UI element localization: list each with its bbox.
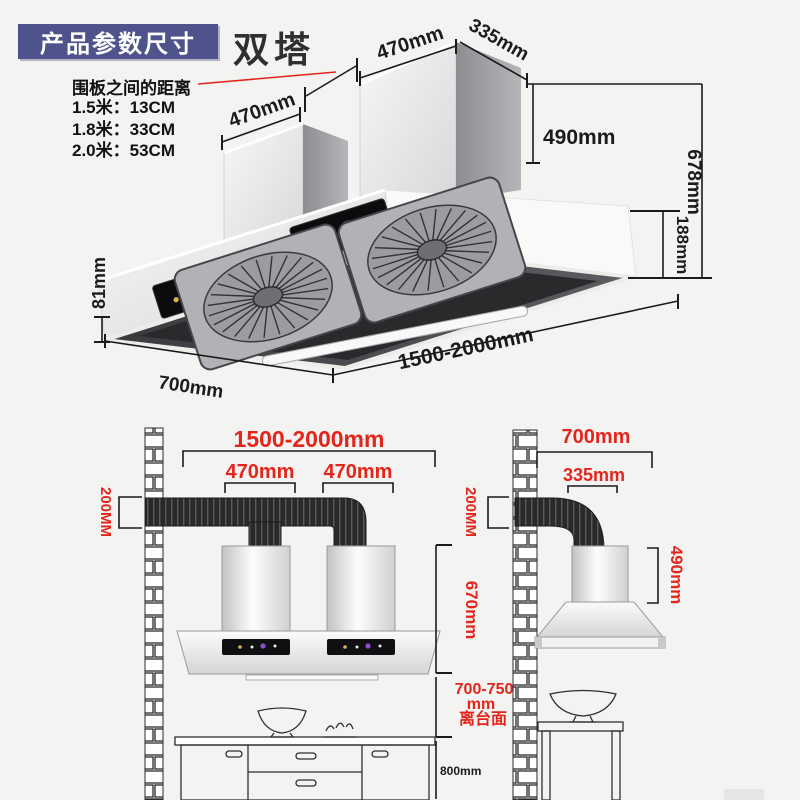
fe-wok-and-burner xyxy=(258,708,356,737)
gap-leader-line xyxy=(198,72,336,84)
dim-fe-total-width: 1500-2000mm xyxy=(234,426,385,452)
fe-right-chimney xyxy=(327,546,395,631)
fe-hood-body xyxy=(177,631,440,674)
dim-chimney-height: 490mm xyxy=(543,126,615,149)
top-3d-view: 470mm 470mm 335mm 490mm 678mm xyxy=(89,15,712,403)
fe-light-bar xyxy=(246,675,378,680)
dim-fe-left-chimney: 470mm xyxy=(226,461,295,483)
side-elevation: 700mm 335mm 200MM 490mm xyxy=(462,426,686,800)
dim-fe-hood-height: 670mm xyxy=(462,581,481,640)
brick-wall-right xyxy=(513,430,537,800)
dim-se-duct-height: 200MM xyxy=(462,487,479,537)
duct-branch-left xyxy=(249,522,281,547)
dim-hood-body-height: 188mm xyxy=(673,216,692,275)
se-wok-and-stand xyxy=(538,691,623,800)
se-hood-cap-right xyxy=(658,637,665,648)
dim-left-chimney-width: 470mm xyxy=(226,88,298,132)
fe-control-panel-left xyxy=(222,639,290,655)
se-hood-rim xyxy=(535,637,665,648)
dim-se-chimney-height: 490mm xyxy=(667,546,686,605)
fe-left-chimney xyxy=(222,546,290,631)
fe-control-panel-right xyxy=(327,639,395,655)
dim-fe-duct-height: 200MM xyxy=(97,487,114,537)
dim-se-chimney-depth: 335mm xyxy=(563,465,625,485)
dim-fe-clearance-label: 离台面 xyxy=(459,709,507,728)
diagram-canvas: 470mm 470mm 335mm 490mm 678mm xyxy=(0,0,800,800)
dim-se-hood-depth: 700mm xyxy=(562,426,631,448)
dim-front-edge-height: 81mm xyxy=(89,257,109,309)
dim-fe-counter-height: 800mm xyxy=(440,764,481,778)
dim-hood-depth: 700mm xyxy=(157,372,225,402)
brick-wall-left xyxy=(145,428,163,800)
se-hood-cap-left xyxy=(535,637,542,648)
dim-total-height: 678mm xyxy=(683,149,704,215)
dim-fe-right-chimney: 470mm xyxy=(324,461,393,483)
fe-cabinet xyxy=(175,737,435,800)
se-hood-body xyxy=(537,602,663,637)
se-chimney xyxy=(572,546,628,602)
corner-gray-block xyxy=(724,789,764,800)
front-elevation: 1500-2000mm 470mm 470mm 200MM 670mm 700-… xyxy=(97,426,513,800)
